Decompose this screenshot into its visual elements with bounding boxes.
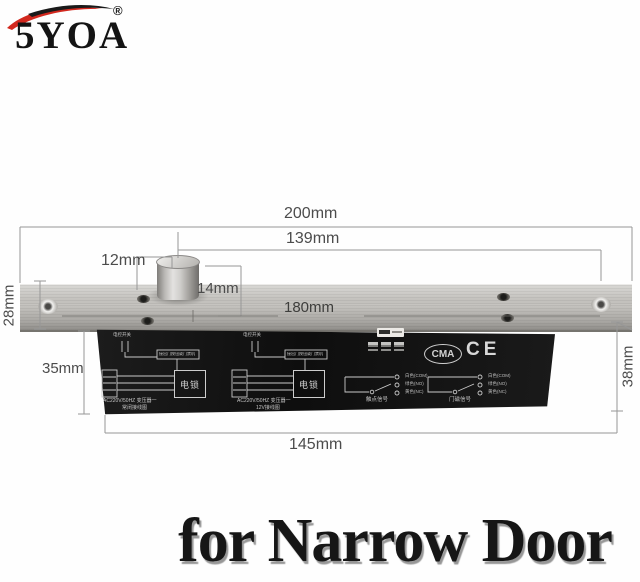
terminal-icon (368, 342, 378, 347)
terminal-label-mark (368, 349, 378, 351)
left-diagram-caption-1: AC220V/50HZ 变压器一 (103, 399, 157, 405)
right-diagram-button-label: 接出门按钮或门禁机 (287, 352, 325, 357)
dimension-body-offset: 35mm (42, 361, 84, 376)
left-diagram-lock-box: 电锁 (174, 370, 206, 398)
terminal-icon (381, 342, 391, 347)
brand-logo-text: 5YOA (15, 13, 129, 58)
relay-left-terminal-3: 黄色(NC) (405, 389, 424, 394)
screw-hole (501, 314, 514, 322)
right-diagram-switch-label: 电控开关 (243, 332, 261, 337)
spec-label-sticker (377, 328, 404, 337)
screw-hole (141, 317, 154, 325)
ce-certification-mark: CE (466, 339, 500, 361)
dimension-bolt-to-end: 139mm (286, 231, 339, 247)
terminal-icon (394, 342, 404, 347)
brand-logo: 5YOA ® (0, 0, 200, 60)
terminal-label-mark (394, 349, 404, 351)
relay-right-terminal-3: 黄色(NC) (488, 389, 507, 394)
mounting-hole-right (591, 297, 611, 312)
screw-hole (497, 293, 510, 301)
registered-trademark-icon: ® (113, 3, 123, 18)
relay-right-caption: 门磁信号 (449, 397, 471, 403)
dimension-hole-spacing: 180mm (284, 300, 334, 315)
terminal-label-mark (381, 349, 391, 351)
relay-right-terminal-1: 白色(COM) (488, 373, 511, 378)
dimension-bolt-offset: 12mm (101, 253, 145, 269)
relay-right-terminal-2: 绿色(NO) (488, 381, 507, 386)
dimension-body-length: 145mm (289, 437, 342, 453)
right-diagram-lock-box: 电锁 (293, 370, 325, 398)
cma-certification-mark: CMA (424, 344, 462, 364)
relay-left-caption: 触点信号 (366, 397, 388, 403)
relay-left-terminal-1: 白色(COM) (405, 373, 428, 378)
product-image: 5YOA ® (0, 0, 640, 582)
bolt-cylinder-top (156, 255, 200, 269)
relay-left-terminal-2: 绿色(NO) (405, 381, 424, 386)
dimension-bolt-diameter: 14mm (197, 281, 239, 296)
dimension-body-height: 38mm (620, 346, 635, 388)
right-diagram-caption-1: AC220V/50HZ 变压器一 (237, 399, 291, 405)
left-diagram-switch-label: 电控开关 (113, 332, 131, 337)
left-diagram-caption-2: 常闭接线图 (122, 406, 147, 412)
dimension-total-width: 200mm (284, 206, 337, 222)
left-diagram-button-label: 接出门按钮或门禁机 (159, 352, 197, 357)
right-diagram-caption-2: 12V接线图 (256, 406, 280, 412)
product-caption: for Narrow Door (0, 506, 640, 577)
mounting-hole-left (38, 299, 58, 314)
dimension-plate-depth: 28mm (1, 285, 16, 327)
